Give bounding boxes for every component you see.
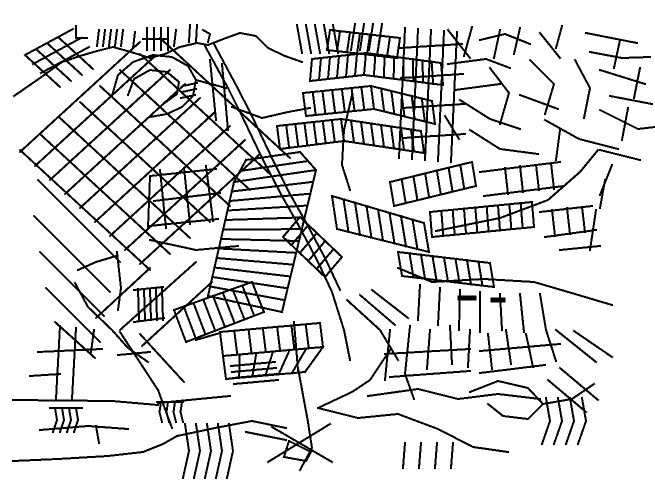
street-map-page [0,0,655,484]
street-network-map [0,0,655,484]
